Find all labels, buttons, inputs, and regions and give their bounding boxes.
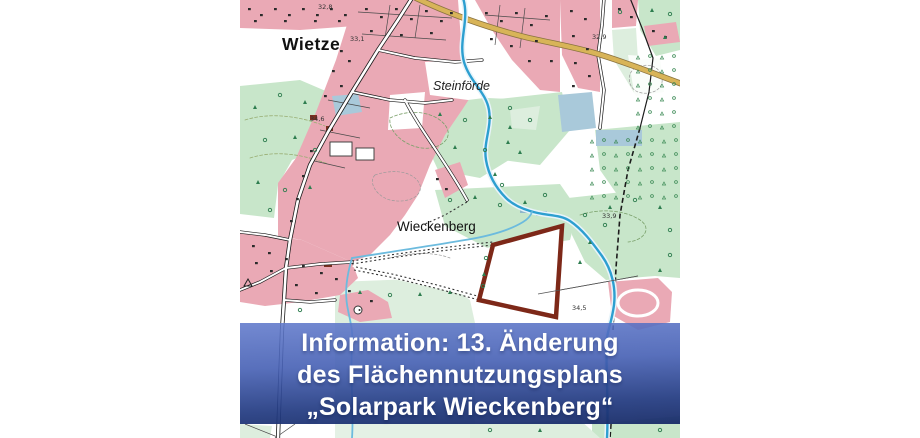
label-wieckenberg: Wieckenberg — [397, 219, 476, 234]
elevation-label: 34,5 — [572, 304, 586, 312]
label-steinfoerde: Steinförde — [433, 79, 490, 93]
post-image: Wietze Steinförde Wieckenberg 32,8 33,1 … — [0, 0, 920, 438]
banner-line-1: Information: 13. Änderung — [301, 327, 619, 359]
well-dot — [359, 309, 361, 311]
well-symbol — [354, 306, 362, 314]
elevation-label: 33,1 — [350, 35, 364, 43]
banner-line-3: „Solarpark Wieckenberg“ — [306, 391, 613, 423]
label-wietze: Wietze — [282, 34, 340, 54]
elevation-label: 32,9 — [592, 33, 606, 41]
elevation-label: 33,9 — [602, 212, 616, 220]
info-banner: Information: 13. Änderung des Flächennut… — [240, 323, 680, 424]
elevation-label: 32,8 — [318, 3, 332, 11]
elevation-label: 34,6 — [310, 115, 324, 123]
banner-line-2: des Flächennutzungsplans — [297, 359, 623, 391]
